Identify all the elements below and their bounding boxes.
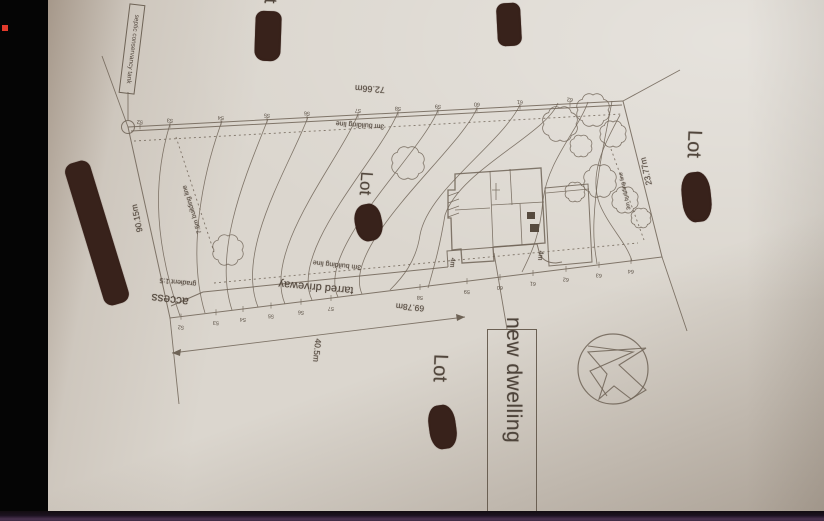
svg-text:60: 60	[474, 101, 481, 107]
lot-label-top-partial: Lot	[261, 0, 280, 11]
svg-text:53: 53	[213, 319, 220, 325]
svg-text:61: 61	[517, 98, 524, 104]
svg-text:61: 61	[530, 280, 537, 286]
svg-text:60: 60	[497, 284, 504, 290]
new-dwelling-labelbox: new dwelling	[487, 329, 537, 521]
left-black-strip	[0, 0, 48, 521]
new-dwelling-label: new dwelling	[489, 315, 537, 521]
lot-label-right: Lot	[683, 122, 705, 167]
svg-text:64: 64	[628, 268, 635, 274]
red-marker-dot	[2, 25, 8, 31]
lot-label-bottom: Lot	[429, 346, 451, 391]
svg-text:54: 54	[240, 316, 247, 322]
svg-text:56: 56	[304, 109, 311, 115]
contour-lines	[158, 101, 632, 316]
svg-text:55: 55	[264, 112, 271, 118]
contour-tick-marks	[140, 101, 631, 320]
contour-elevation-labels: 5253545556575859606162525354555657585960…	[137, 96, 635, 330]
photo-of-site-plan: 5253545556575859606162525354555657585960…	[0, 0, 824, 521]
svg-text:57: 57	[328, 305, 335, 311]
house-interior-walls	[448, 169, 544, 246]
house-outline	[448, 168, 545, 263]
lot-boundary	[102, 56, 687, 404]
svg-text:58: 58	[417, 294, 424, 300]
svg-text:52: 52	[137, 118, 144, 124]
svg-text:57: 57	[355, 107, 362, 113]
redaction-mark-top-right	[496, 2, 522, 46]
lot-label-middle: Lot	[356, 165, 375, 202]
garage-outline	[545, 184, 592, 266]
svg-text:56: 56	[298, 309, 305, 315]
svg-text:59: 59	[464, 288, 471, 294]
svg-text:63: 63	[596, 272, 603, 278]
svg-text:62: 62	[563, 276, 570, 282]
svg-text:52: 52	[178, 323, 185, 329]
redaction-mark-top-center	[254, 11, 282, 62]
north-compass-icon	[578, 334, 648, 404]
svg-text:55: 55	[268, 312, 275, 318]
svg-text:62: 62	[567, 96, 574, 102]
svg-text:54: 54	[218, 114, 225, 120]
bottom-purple-bar	[0, 511, 824, 521]
svg-text:59: 59	[435, 103, 442, 109]
svg-text:53: 53	[167, 117, 174, 123]
svg-text:58: 58	[395, 105, 402, 111]
